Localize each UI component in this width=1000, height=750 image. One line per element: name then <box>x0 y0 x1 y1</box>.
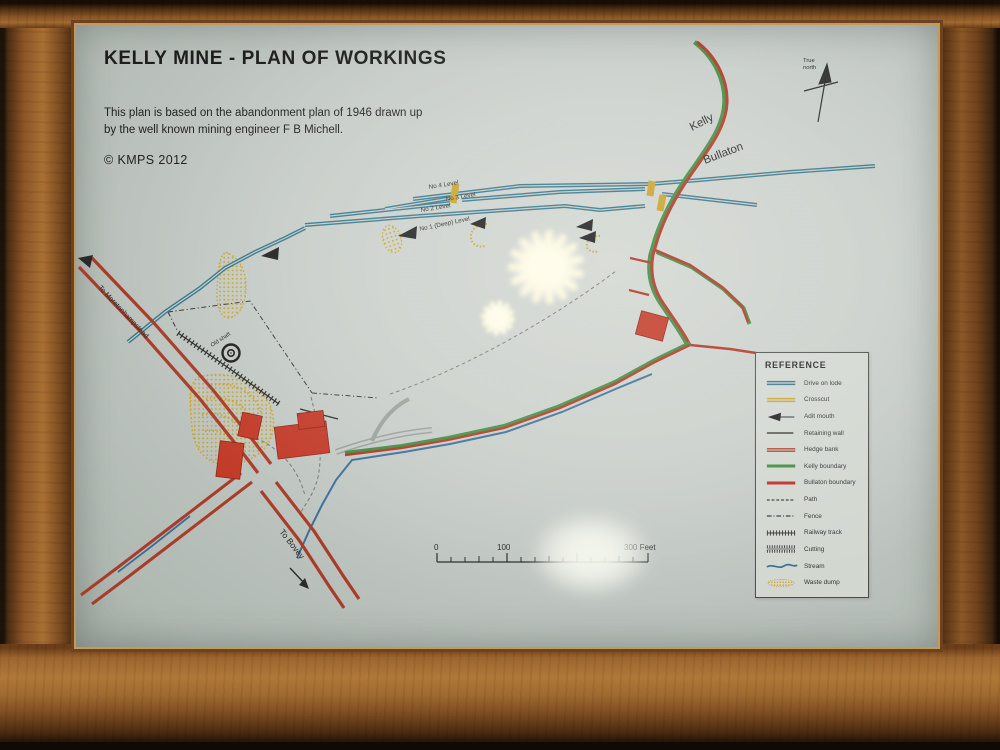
bullaton-boundary-swatch <box>765 478 799 488</box>
scale-bar: 0 100 300 Feet <box>434 543 656 562</box>
legend-label: Retaining wall <box>804 430 844 437</box>
kelly-boundary-swatch <box>765 461 799 471</box>
plan-subtitle: This plan is based on the abandonment pl… <box>104 105 422 138</box>
hedge-bank-swatch <box>765 445 799 455</box>
legend-item-fence: Fence <box>765 508 862 525</box>
scale-label-300: 300 Feet <box>624 543 656 552</box>
stream-line-west <box>118 516 190 572</box>
crosscut-swatch <box>765 395 799 405</box>
legend-label: Stream <box>804 563 825 570</box>
legend-item-bullaton-boundary: Bullaton boundary <box>765 475 862 492</box>
legend-item-hedge-bank: Hedge bank <box>765 441 862 458</box>
old-shaft-symbol <box>223 345 240 362</box>
retaining-wall-swatch <box>765 428 799 438</box>
legend-item-waste-dump: Waste dump <box>765 574 862 591</box>
legend-label: Railway track <box>804 529 842 536</box>
waste-dump-north <box>217 252 246 318</box>
waste-dump-swatch <box>765 578 799 588</box>
waste-dump-small <box>379 223 405 255</box>
fence-east <box>312 393 378 398</box>
drive-on-lode-swatch <box>765 378 799 388</box>
legend-item-cutting: Cutting <box>765 541 862 558</box>
legend-item-path: Path <box>765 491 862 508</box>
drives-on-lode <box>128 166 875 342</box>
path-to-bullaton <box>390 271 616 394</box>
legend-label: Path <box>804 496 817 503</box>
legend-label: Bullaton boundary <box>804 479 856 486</box>
legend-label: Kelly boundary <box>804 463 846 470</box>
plan-subtitle-line2: by the well known mining engineer F B Mi… <box>104 122 422 139</box>
legend-label: Fence <box>804 513 822 520</box>
adit-mouth-swatch <box>765 412 799 422</box>
legend-item-adit-mouth: Adit mouth <box>765 408 862 425</box>
legend-item-crosscut: Crosscut <box>765 392 862 409</box>
north-arrow-label-2: north <box>803 65 816 71</box>
legend-item-stream: Stream <box>765 558 862 575</box>
legend-title: REFERENCE <box>765 360 862 370</box>
kelly-bullaton-road <box>345 42 756 455</box>
label-kelly: Kelly <box>688 112 716 134</box>
framed-mine-plan-photo: True north 0 100 300 Feet Kelly Bullaton… <box>0 0 1000 750</box>
north-arrow: True north <box>803 58 838 122</box>
fence-swatch <box>765 511 799 521</box>
plan-copyright: © KMPS 2012 <box>104 153 188 167</box>
legend-box: REFERENCE Drive on lode Crosscut Adit mo… <box>755 352 869 598</box>
legend-item-kelly-boundary: Kelly boundary <box>765 458 862 475</box>
legend-label: Waste dump <box>804 579 840 586</box>
plan-title: KELLY MINE - PLAN OF WORKINGS <box>104 48 447 70</box>
legend-label: Cutting <box>804 546 824 553</box>
legend-item-retaining-wall: Retaining wall <box>765 425 862 442</box>
stream-line <box>297 374 652 558</box>
plan-subtitle-line1: This plan is based on the abandonment pl… <box>104 105 422 122</box>
path-swatch <box>765 495 799 505</box>
north-arrow-label-1: True <box>803 58 815 64</box>
scale-label-100: 100 <box>497 543 511 552</box>
label-level-1-deep: No 1 (Deep) Level <box>419 215 470 232</box>
legend-label: Drive on lode <box>804 380 842 387</box>
railway-track-swatch <box>765 528 799 538</box>
legend-label: Crosscut <box>804 396 829 403</box>
southwest-road <box>81 473 252 604</box>
bovey-road <box>261 482 359 608</box>
cutting-swatch <box>765 544 799 554</box>
stream-swatch <box>765 561 799 571</box>
legend-item-drive-on-lode: Drive on lode <box>765 375 862 392</box>
legend-label: Hedge bank <box>804 446 838 453</box>
label-old-shaft: Old shaft <box>210 331 232 348</box>
legend-item-railway-track: Railway track <box>765 524 862 541</box>
legend-label: Adit mouth <box>804 413 835 420</box>
scale-label-0: 0 <box>434 543 439 552</box>
